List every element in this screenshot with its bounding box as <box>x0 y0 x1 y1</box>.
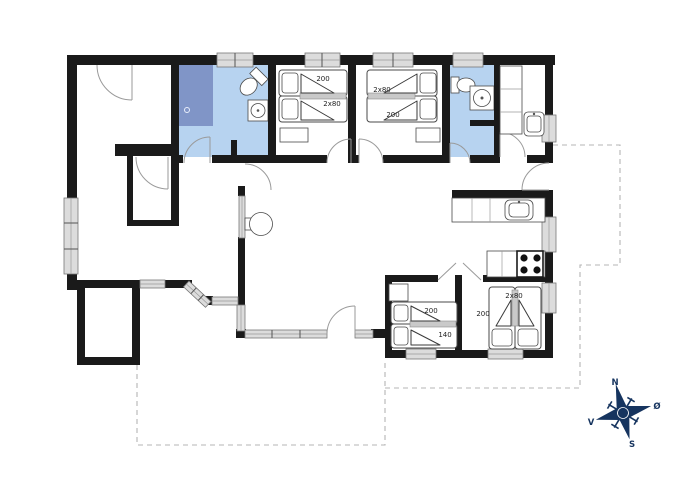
closet <box>280 128 308 142</box>
bed-size-label: 2x80 <box>373 86 391 94</box>
pillow <box>492 329 512 346</box>
utility-door-arc <box>500 132 525 157</box>
partition-stub <box>470 120 494 126</box>
compass-label-north: N <box>611 378 618 388</box>
washbasin-icon <box>248 100 268 121</box>
front-door-arc <box>97 65 132 100</box>
terrace-door-arc <box>327 306 355 334</box>
bed-size-label: 200 <box>386 111 399 119</box>
pillow <box>420 99 436 119</box>
fireplace <box>245 213 273 236</box>
closet <box>389 284 408 301</box>
washing-machine-icon <box>470 86 494 110</box>
sink-icon <box>524 112 544 136</box>
compass-label-west: V <box>588 418 595 428</box>
stove-icon <box>517 251 543 277</box>
bed-size-label: 200 <box>316 75 329 83</box>
bedroom-2: 2x80 200 <box>367 70 440 142</box>
hall-door-arc <box>245 164 271 190</box>
compass-rose: N Ø S V <box>588 377 661 450</box>
back-door-arc <box>522 163 549 190</box>
bedroom-3: 200 140 <box>389 284 457 348</box>
kitchen-sink-icon <box>505 200 533 220</box>
shower-partition <box>231 140 237 157</box>
pillow <box>394 327 408 345</box>
bed-size-label: 200 <box>424 307 437 315</box>
wood-stove-icon <box>250 213 273 236</box>
pillow <box>282 99 298 119</box>
pillow <box>282 73 298 93</box>
bed-size-label: 2x80 <box>505 292 523 300</box>
pillow <box>518 329 538 346</box>
floor-plan: 200 2x80 2x80 200 <box>0 0 700 500</box>
bed-size-label: 200 <box>476 310 489 318</box>
bedroom-1-door-arc <box>327 139 351 163</box>
floor-plan-canvas: 200 2x80 2x80 200 <box>0 0 700 500</box>
closet <box>416 128 440 142</box>
utility-room <box>500 66 544 136</box>
bedroom-4: 2x80 200 <box>476 287 541 349</box>
counter <box>500 66 522 134</box>
bedroom-4-door-leaf <box>463 263 481 280</box>
pillow <box>394 305 408 321</box>
bathroom-1 <box>179 65 268 157</box>
bathroom-2 <box>450 65 494 157</box>
compass-label-south: S <box>629 440 635 450</box>
bed-size-label: 140 <box>438 331 451 339</box>
bedroom-2-door-arc <box>359 139 383 163</box>
bedroom-3-door-leaf <box>438 263 456 280</box>
compass-label-east: Ø <box>653 401 660 412</box>
closet-door-arc <box>136 157 168 189</box>
bedroom-1: 200 2x80 <box>279 70 347 142</box>
terrace-south <box>137 363 385 445</box>
pillow <box>420 73 436 93</box>
bed-size-label: 2x80 <box>323 100 341 108</box>
shower-area <box>179 65 213 126</box>
